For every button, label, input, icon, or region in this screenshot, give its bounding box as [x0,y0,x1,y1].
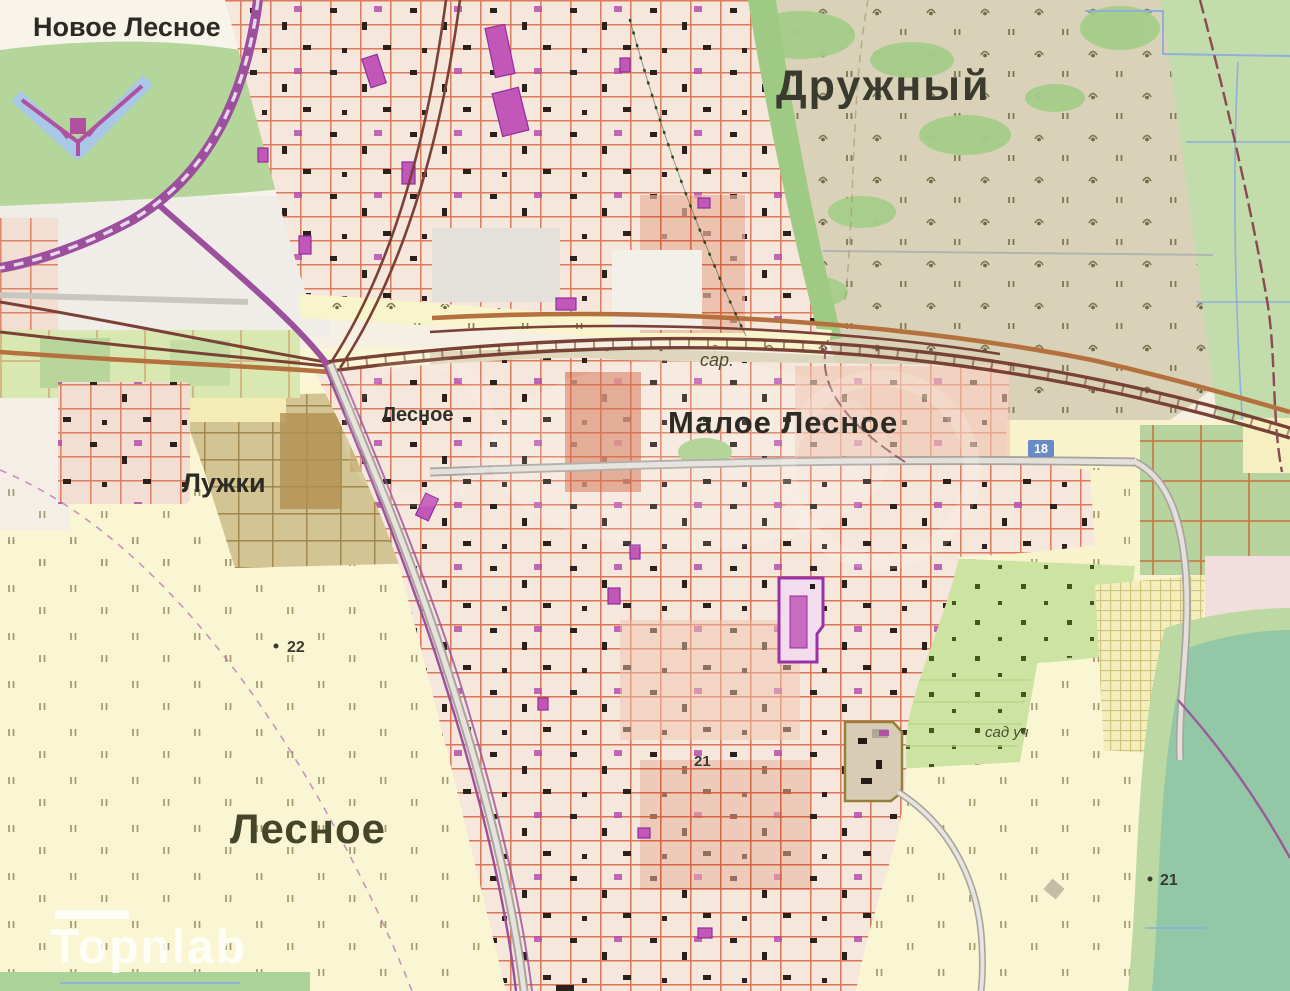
watermark-text: Topnlab [50,921,247,974]
label-maloe-lesnoe: Малое Лесное [668,405,898,440]
map-viewport[interactable]: Новое Лесное Дружный Лужки Лесное Малое … [0,0,1290,991]
label-sar: сар. [700,350,734,370]
label-lesnoe-big: Лесное [230,805,386,852]
label-luzhki: Лужки [182,468,266,498]
label-druzhny: Дружный [776,62,990,110]
label-21-a: 21 [694,753,711,770]
topnlab-logo-icon [55,910,129,919]
label-km-18: 18 [1034,442,1048,456]
topo-map-canvas: Новое Лесное Дружный Лужки Лесное Малое … [0,0,1290,991]
label-novoe-lesnoe: Новое Лесное [33,12,221,42]
label-sad-uch: сад уч [985,724,1029,741]
label-22: 22 [287,639,305,656]
label-lesnoe-small: Лесное [382,404,453,426]
walled-compound [845,722,902,801]
km-post-18: 18 [1028,440,1054,457]
purple-compound [779,578,823,662]
label-21-b: 21 [1160,872,1178,889]
